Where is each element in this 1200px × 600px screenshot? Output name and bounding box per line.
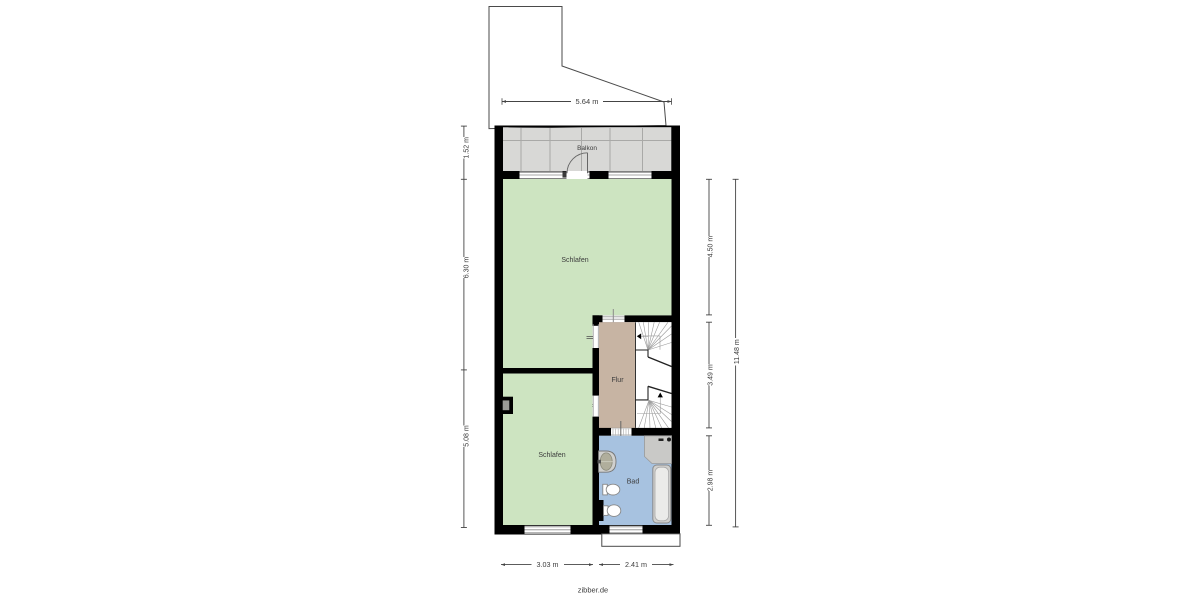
svg-text:1.52 m: 1.52 m <box>463 137 470 159</box>
svg-text:Schlafen: Schlafen <box>538 452 565 459</box>
svg-text:6.30 m: 6.30 m <box>463 257 470 279</box>
svg-text:2.98 m: 2.98 m <box>707 470 714 492</box>
svg-text:5.08 m: 5.08 m <box>463 425 470 447</box>
svg-text:Bad: Bad <box>627 479 640 486</box>
svg-text:5.64 m: 5.64 m <box>576 97 599 106</box>
svg-text:2.41 m: 2.41 m <box>625 560 647 569</box>
svg-text:zibber.de: zibber.de <box>578 586 608 595</box>
svg-text:11.48 m: 11.48 m <box>734 339 741 364</box>
svg-text:3.49 m: 3.49 m <box>707 364 714 386</box>
svg-text:Schlafen: Schlafen <box>561 257 588 264</box>
svg-text:Flur: Flur <box>611 377 624 384</box>
svg-text:4.50 m: 4.50 m <box>707 236 714 258</box>
svg-text:Balkon: Balkon <box>577 145 597 152</box>
svg-text:3.03 m: 3.03 m <box>537 560 559 569</box>
